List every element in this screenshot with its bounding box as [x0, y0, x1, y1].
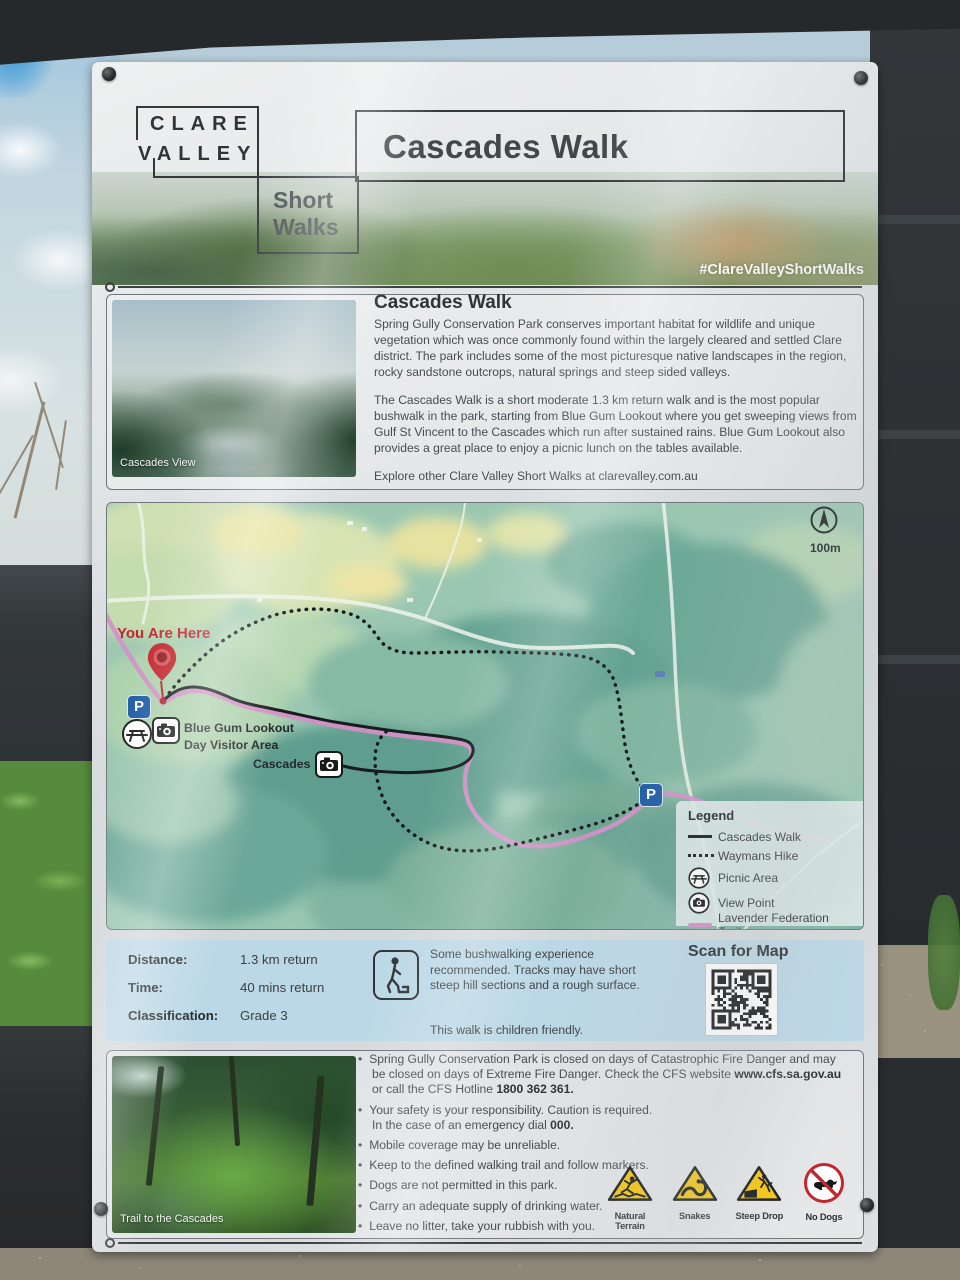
qr-code: [706, 964, 777, 1035]
fence-rail-left-lower: [0, 1026, 93, 1252]
brand-logo-line1: CLARE: [150, 114, 254, 134]
series-label-line2: Walks: [273, 214, 357, 241]
natural-terrain-warning: Natural Terrain: [602, 1164, 658, 1226]
grass-left: [0, 761, 93, 1026]
you-are-here-label: You Are Here: [117, 625, 210, 642]
no-dogs-warning: No Dogs: [796, 1164, 852, 1226]
fence-rail-gap: [872, 430, 960, 439]
about-text: Cascades Walk Spring Gully Conservation …: [374, 295, 858, 496]
gravel-ground: [0, 1248, 960, 1280]
safety-bullet: Your safety is your responsibility. Caut…: [358, 1103, 844, 1133]
about-paragraph-2: The Cascades Walk is a short moderate 1.…: [374, 392, 858, 456]
safety-bullet: Mobile coverage may be unreliable.: [358, 1138, 844, 1153]
no-dogs-icon: [802, 1161, 846, 1205]
divider-line: [118, 1242, 862, 1244]
divider-line: [118, 286, 862, 288]
shrub-right: [928, 895, 960, 1010]
warning-icons-row: Natural Terrain Snakes Steep Drop: [602, 1164, 852, 1226]
snakes-icon: [672, 1164, 718, 1204]
walk-title: Cascades Walk: [383, 128, 629, 166]
walk-facts-band: Distance:1.3 km return Time:40 mins retu…: [106, 940, 864, 1041]
parking-badge-east: P: [639, 783, 663, 807]
short-walks-box: Short Walks: [257, 176, 359, 254]
safety-bullet: Spring Gully Conservation Park is closed…: [358, 1052, 844, 1098]
photo-caption: Trail to the Cascades: [120, 1213, 224, 1225]
steep-drop-icon: [736, 1164, 782, 1204]
scan-for-map-heading: Scan for Map: [688, 943, 788, 961]
picnic-area-icon: [688, 867, 718, 889]
fence-rail-right-lower: [870, 1058, 960, 1252]
brand-frame: [153, 176, 259, 178]
brand-logo-line2: VALLEY: [138, 144, 257, 164]
legend-title: Legend: [688, 808, 853, 823]
photo-caption: Cascades View: [120, 457, 196, 469]
cascades-view-point-icon: [315, 751, 343, 778]
natural-terrain-icon: [607, 1164, 653, 1204]
pink-line-icon: [688, 923, 718, 927]
walker-icon: [373, 950, 419, 1000]
dam-marker: [655, 671, 665, 677]
brand-frame: [257, 106, 259, 178]
fence-rail-left: [0, 565, 93, 761]
fence-post-right: [870, 18, 960, 950]
steep-drop-warning: Steep Drop: [731, 1164, 787, 1226]
sign-panel: CLARE VALLEY Cascades Walk Short Walks #…: [92, 62, 878, 1252]
cascades-view-photo: Cascades View: [112, 300, 356, 477]
solid-line-icon: [688, 835, 718, 838]
fence-rail-gap: [872, 215, 960, 224]
legend-item-lavender-trail: Lavender Federation Trail: [688, 915, 853, 930]
map-scale-label: 100m: [810, 541, 841, 555]
picnic-area-icon: [122, 719, 152, 749]
cascades-label: Cascades: [253, 756, 310, 773]
snakes-warning: Snakes: [667, 1164, 723, 1226]
photo-of-trail-sign: CLARE VALLEY Cascades Walk Short Walks #…: [0, 0, 960, 1280]
legend-item-cascades-walk: Cascades Walk: [688, 827, 853, 846]
fact-classification: Classification:Grade 3: [128, 1008, 288, 1023]
brand-frame: [136, 106, 138, 140]
about-heading: Cascades Walk: [374, 295, 858, 311]
view-point-icon: [152, 717, 180, 744]
fence-rail-gap: [872, 655, 960, 664]
experience-note: Some bushwalking experience recommended.…: [430, 947, 654, 994]
divider-ring: [105, 1238, 115, 1248]
fact-distance: Distance:1.3 km return: [128, 952, 318, 967]
blue-gum-lookout-label: Blue Gum Lookout Day Visitor Area: [184, 720, 294, 754]
tree-silhouette: [0, 370, 92, 570]
about-paragraph-3: Explore other Clare Valley Short Walks a…: [374, 468, 858, 484]
you-are-here-dot: [160, 698, 167, 705]
screw: [860, 1198, 874, 1212]
about-paragraph-1: Spring Gully Conservation Park conserves…: [374, 316, 858, 380]
screw: [102, 67, 116, 81]
parking-badge-west: P: [127, 695, 151, 719]
view-point-icon: [688, 892, 718, 914]
fact-time: Time:40 mins return: [128, 980, 324, 995]
trail-photo: Trail to the Cascades: [112, 1056, 356, 1233]
map-legend: Legend Cascades Walk Waymans Hike Picnic…: [676, 801, 863, 926]
dotted-line-icon: [688, 854, 718, 857]
hashtag: #ClareValleyShortWalks: [578, 262, 864, 278]
children-friendly-note: This walk is children friendly.: [430, 1023, 583, 1037]
screw: [94, 1202, 108, 1216]
divider-ring: [105, 282, 115, 292]
legend-item-picnic-area: Picnic Area: [688, 865, 853, 890]
screw: [854, 71, 868, 85]
series-label-line1: Short: [273, 187, 357, 214]
you-are-here-pin: [146, 641, 178, 683]
legend-item-waymans-hike: Waymans Hike: [688, 846, 853, 865]
north-arrow-icon: [810, 506, 838, 534]
brand-frame: [136, 106, 259, 108]
trail-map: You Are Here P P Blue Gum Look: [106, 502, 864, 930]
walk-title-box: Cascades Walk: [355, 110, 845, 182]
